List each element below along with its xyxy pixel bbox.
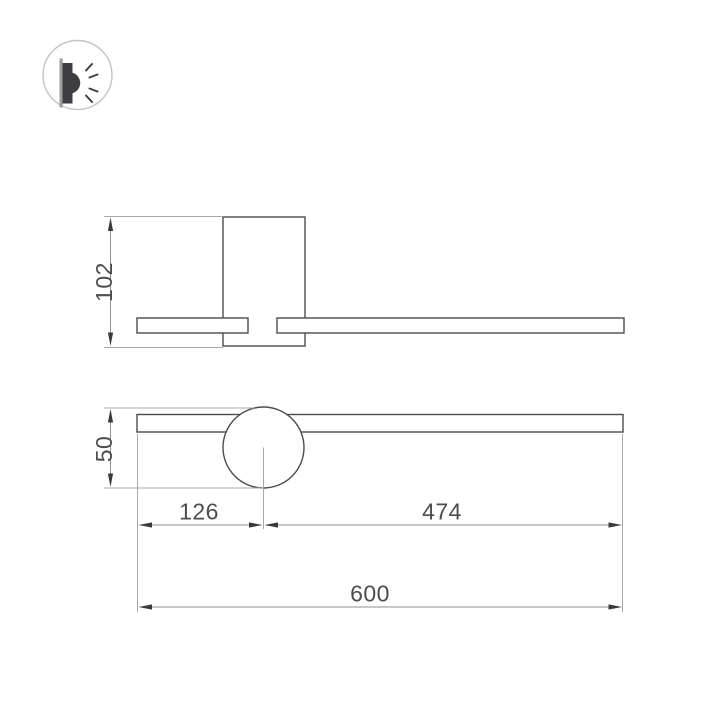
- icon-light-ray: [90, 89, 98, 92]
- icon-light-ray: [90, 75, 98, 78]
- dim-label-left-offset: 126: [179, 499, 219, 525]
- arrowhead-down: [108, 333, 113, 347]
- product-type-icon: [43, 41, 112, 110]
- front-view-bar: [137, 415, 623, 433]
- top-view-bar-left: [137, 318, 248, 333]
- top-view-bar-right: [277, 318, 624, 333]
- icon-ring-circle: [43, 41, 112, 110]
- arrowhead-down: [108, 474, 113, 488]
- arrowhead-left: [139, 522, 153, 527]
- icon-light-ray: [86, 64, 92, 71]
- arrowhead-up: [108, 218, 113, 232]
- arrowhead-left: [265, 522, 279, 527]
- top-view: 102: [91, 217, 624, 348]
- front-view: 50 126 474 600: [91, 407, 623, 612]
- arrowhead-right: [609, 604, 623, 609]
- icon-light-ray: [86, 96, 92, 103]
- arrowhead-right: [249, 522, 263, 527]
- technical-drawing-svg: 102 50 126 474: [0, 0, 720, 720]
- dim-label-right-offset: 474: [422, 499, 462, 525]
- icon-wall-plate: [60, 59, 63, 108]
- icon-lamp-body: [63, 63, 73, 104]
- dim-label-overall-length: 600: [350, 581, 390, 607]
- dim-label-depth: 102: [91, 262, 117, 302]
- arrowhead-right: [609, 522, 623, 527]
- dim-label-height: 50: [91, 436, 117, 463]
- arrowhead-up: [108, 409, 113, 423]
- icon-light-dome: [73, 73, 81, 93]
- drawing-canvas: 102 50 126 474: [0, 0, 720, 720]
- arrowhead-left: [139, 604, 153, 609]
